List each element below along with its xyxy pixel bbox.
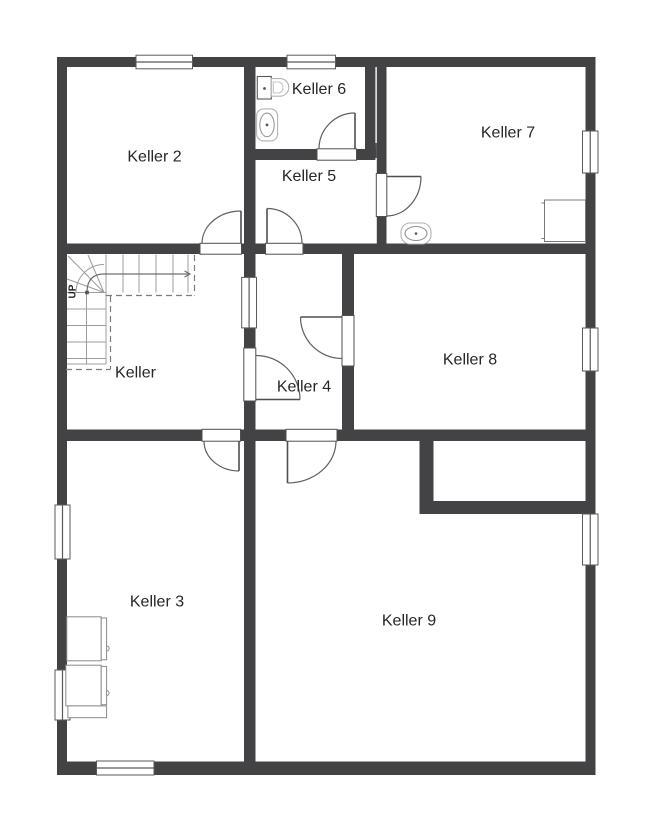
svg-text:Keller 9: Keller 9	[382, 613, 436, 630]
svg-text:Keller 7: Keller 7	[481, 125, 535, 142]
svg-text:Keller 4: Keller 4	[277, 379, 331, 396]
svg-text:Keller 6: Keller 6	[292, 81, 346, 98]
svg-text:Keller 5: Keller 5	[282, 168, 336, 185]
svg-text:UP: UP	[68, 284, 79, 298]
svg-text:Keller 2: Keller 2	[127, 149, 181, 166]
svg-text:Keller 3: Keller 3	[130, 594, 184, 611]
svg-text:Keller: Keller	[115, 365, 157, 382]
svg-text:Keller 8: Keller 8	[443, 352, 497, 369]
